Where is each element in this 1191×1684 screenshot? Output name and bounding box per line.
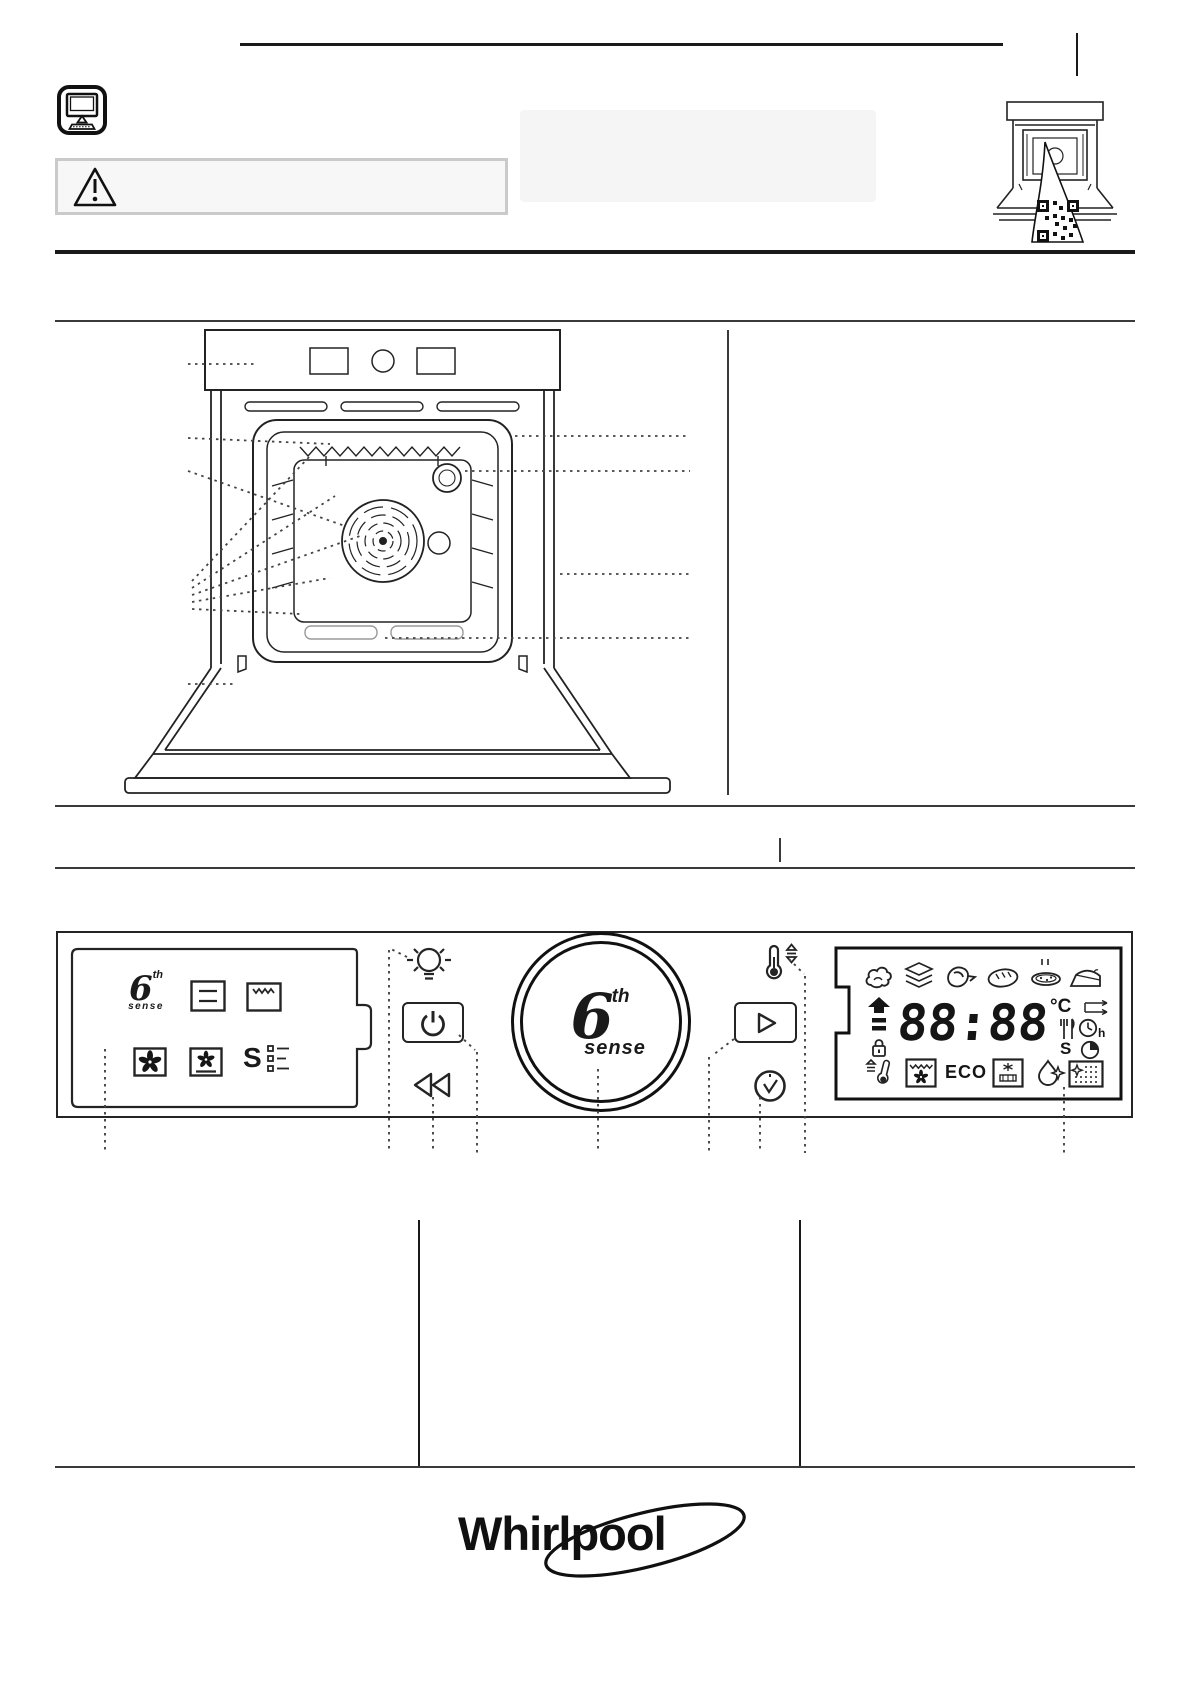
brand-wordmark: Whirlpool <box>458 1506 666 1561</box>
warning-box <box>55 158 508 215</box>
section-rule-1 <box>55 320 1135 322</box>
panel-leader-lines <box>55 931 1135 1161</box>
manual-page: 6th sense S <box>0 0 1191 1684</box>
section-rule-2 <box>55 805 1135 807</box>
oven-front-diagram <box>95 326 695 804</box>
diagram-leader-lines <box>188 364 690 684</box>
column-divider-left <box>418 1220 420 1466</box>
header-tick <box>1076 33 1078 76</box>
shelf-rails <box>272 480 493 588</box>
highlight-panel <box>520 110 876 202</box>
column-divider-right <box>799 1220 801 1466</box>
monitor-icon <box>56 84 108 136</box>
section-rule-3 <box>55 867 1135 869</box>
section-rule-thick <box>55 250 1135 254</box>
column-divider-figure <box>727 330 729 795</box>
oven-lamp <box>433 464 461 492</box>
grill-element <box>300 447 460 456</box>
column-tick <box>779 838 781 862</box>
warning-triangle-icon <box>72 165 118 209</box>
oven-fan <box>342 500 424 582</box>
brand-logo: Whirlpool <box>430 1488 770 1600</box>
footer-rule <box>55 1466 1135 1468</box>
header-rule <box>240 43 1003 46</box>
oven-door <box>153 668 612 754</box>
oven-qr-sticker-icon <box>985 92 1125 252</box>
